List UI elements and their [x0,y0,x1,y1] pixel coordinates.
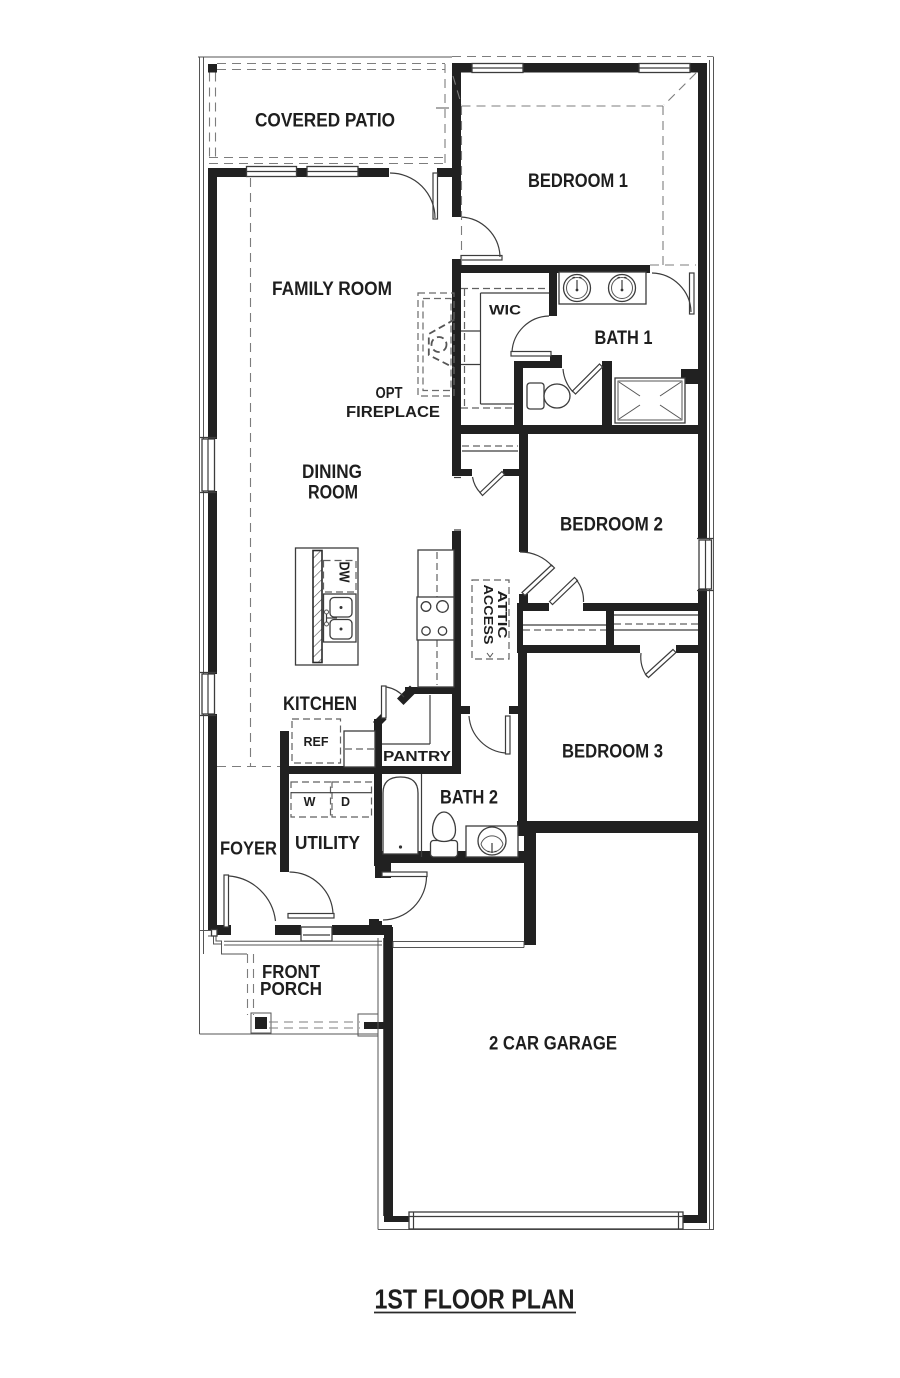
svg-text:REF: REF [304,735,329,749]
svg-text:PORCH: PORCH [260,979,322,999]
svg-text:1ST FLOOR PLAN: 1ST FLOOR PLAN [375,1284,575,1315]
svg-text:DW: DW [336,562,352,583]
svg-text:KITCHEN: KITCHEN [283,694,357,715]
svg-text:ROOM: ROOM [308,483,358,504]
svg-text:BEDROOM 2: BEDROOM 2 [560,515,663,536]
svg-text:D: D [341,795,350,809]
svg-text:PANTRY: PANTRY [383,748,451,765]
svg-text:DINING: DINING [302,462,362,483]
svg-text:FAMILY ROOM: FAMILY ROOM [272,279,392,300]
svg-text:ACCESS: ACCESS [481,585,495,645]
svg-text:BEDROOM 1: BEDROOM 1 [528,171,628,192]
svg-text:W: W [304,795,316,809]
svg-text:BATH 2: BATH 2 [440,788,498,809]
svg-text:ATTIC: ATTIC [495,591,509,639]
svg-text:OPT: OPT [376,385,403,402]
svg-text:COVERED PATIO: COVERED PATIO [255,111,395,132]
svg-text:FOYER: FOYER [220,839,277,859]
svg-text:BEDROOM 3: BEDROOM 3 [562,742,663,763]
svg-text:2 CAR GARAGE: 2 CAR GARAGE [489,1034,617,1055]
svg-text:UTILITY: UTILITY [295,833,360,853]
svg-text:BATH 1: BATH 1 [595,328,653,349]
svg-text:FIREPLACE: FIREPLACE [346,404,440,421]
svg-text:WIC: WIC [489,302,521,318]
